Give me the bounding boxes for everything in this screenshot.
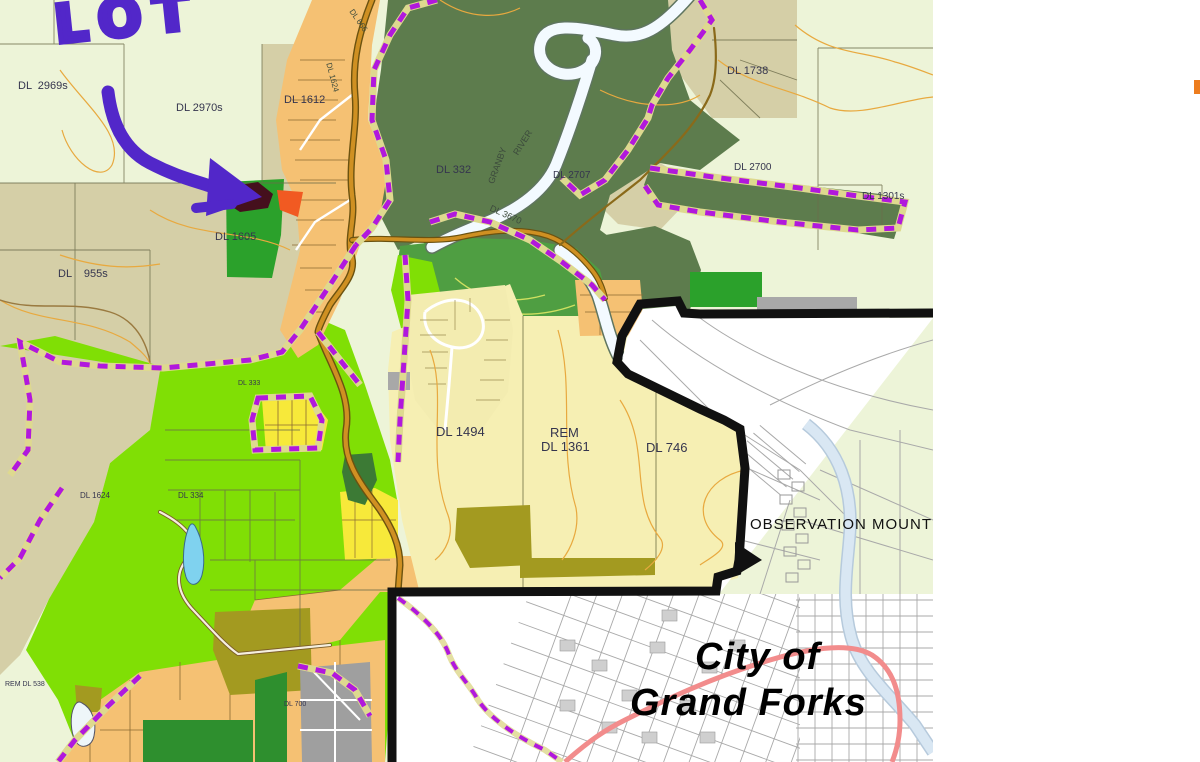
parcel-map-canvas: [0, 0, 1200, 762]
map-viewport: DL 2969sDL 2970sDL 1612DL 1605DL 955sDL …: [0, 0, 1200, 762]
edge-marker: [1194, 80, 1200, 94]
